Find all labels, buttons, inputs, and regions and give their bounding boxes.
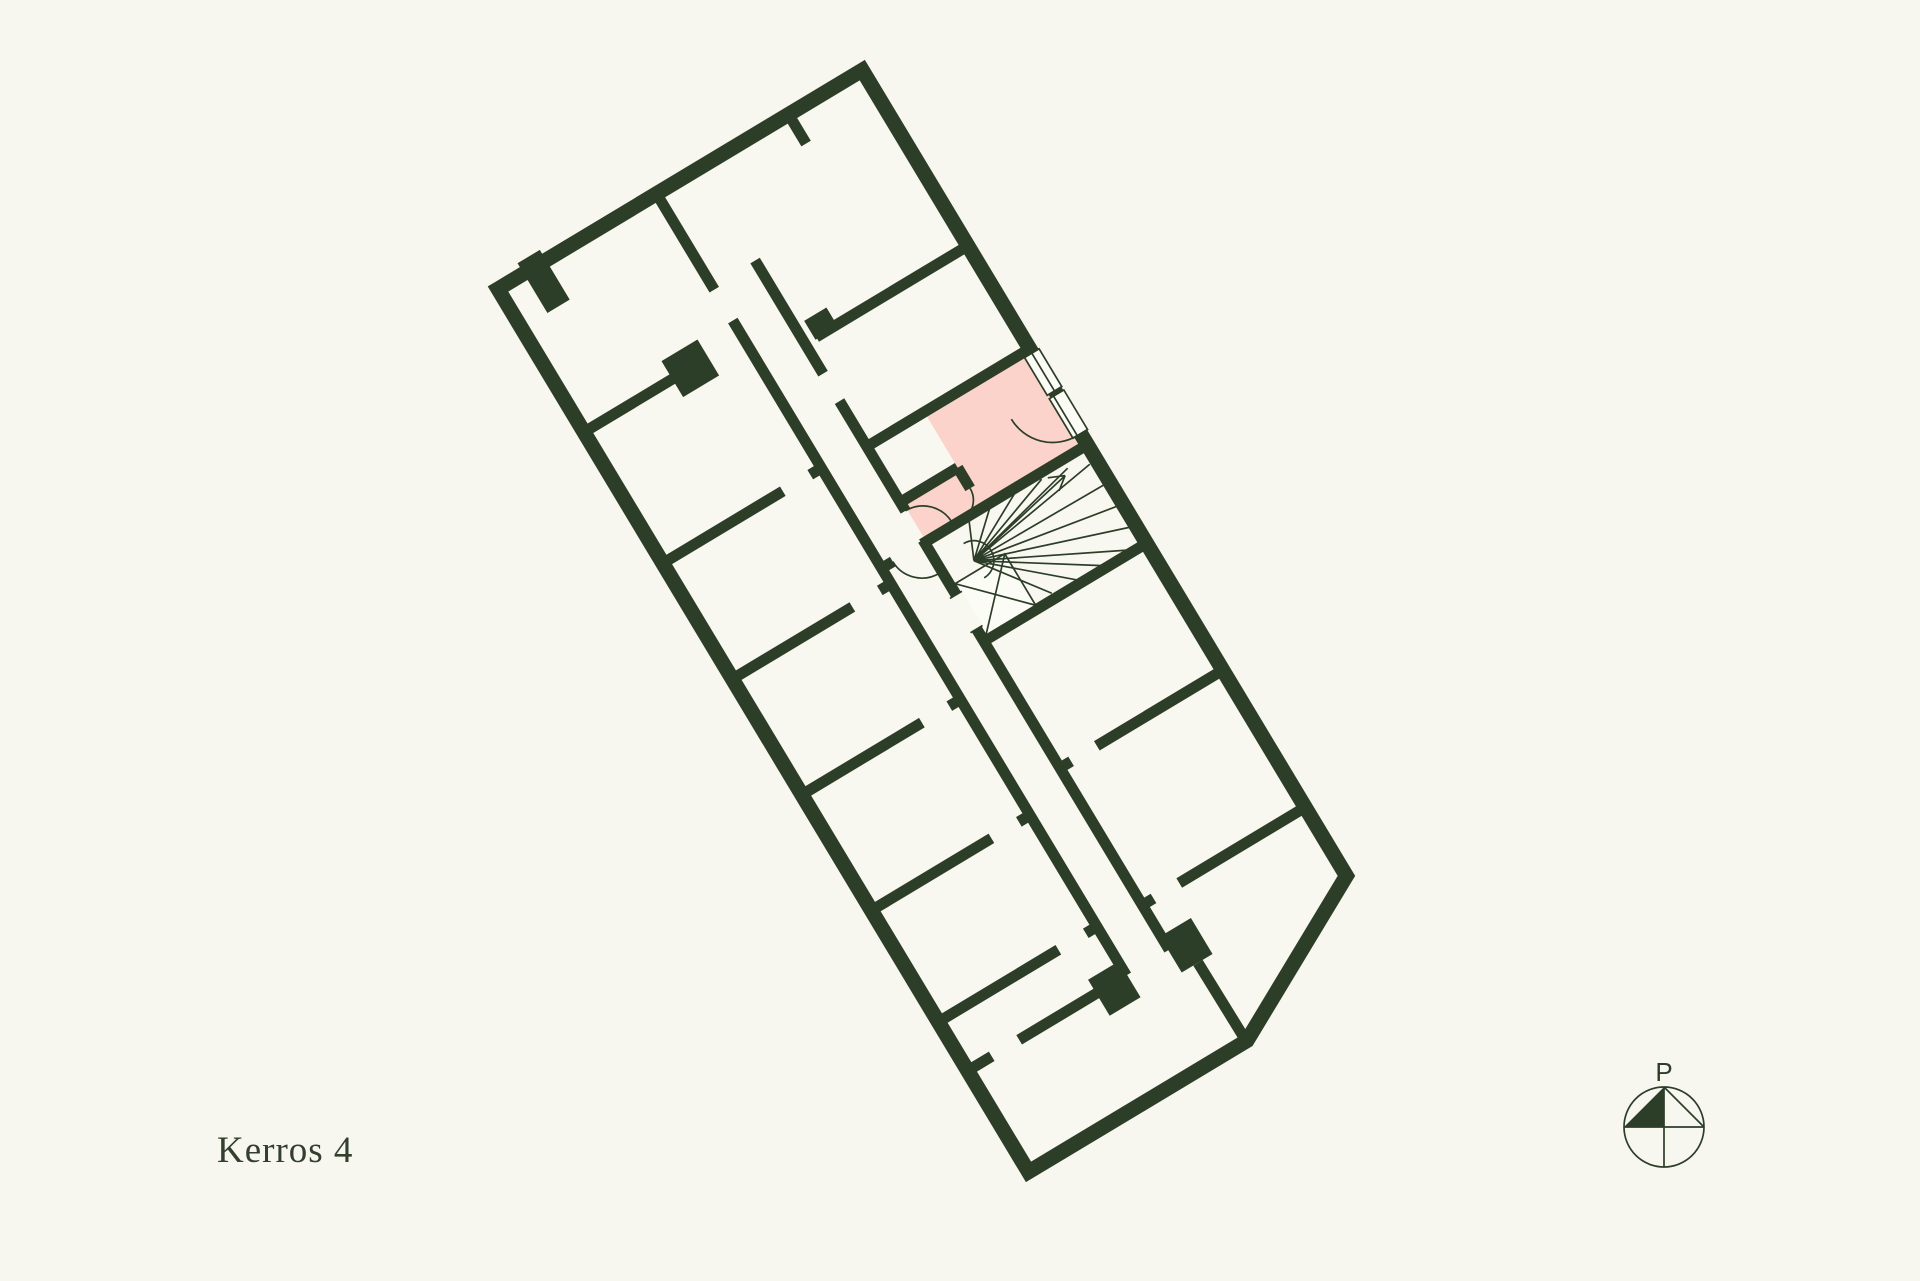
page: P Kerros 4 — [0, 0, 1920, 1281]
floor-label: Kerros 4 — [217, 1130, 353, 1171]
floor-plan-canvas: P Kerros 4 — [0, 0, 1920, 1281]
north-label: P — [1655, 1057, 1672, 1087]
